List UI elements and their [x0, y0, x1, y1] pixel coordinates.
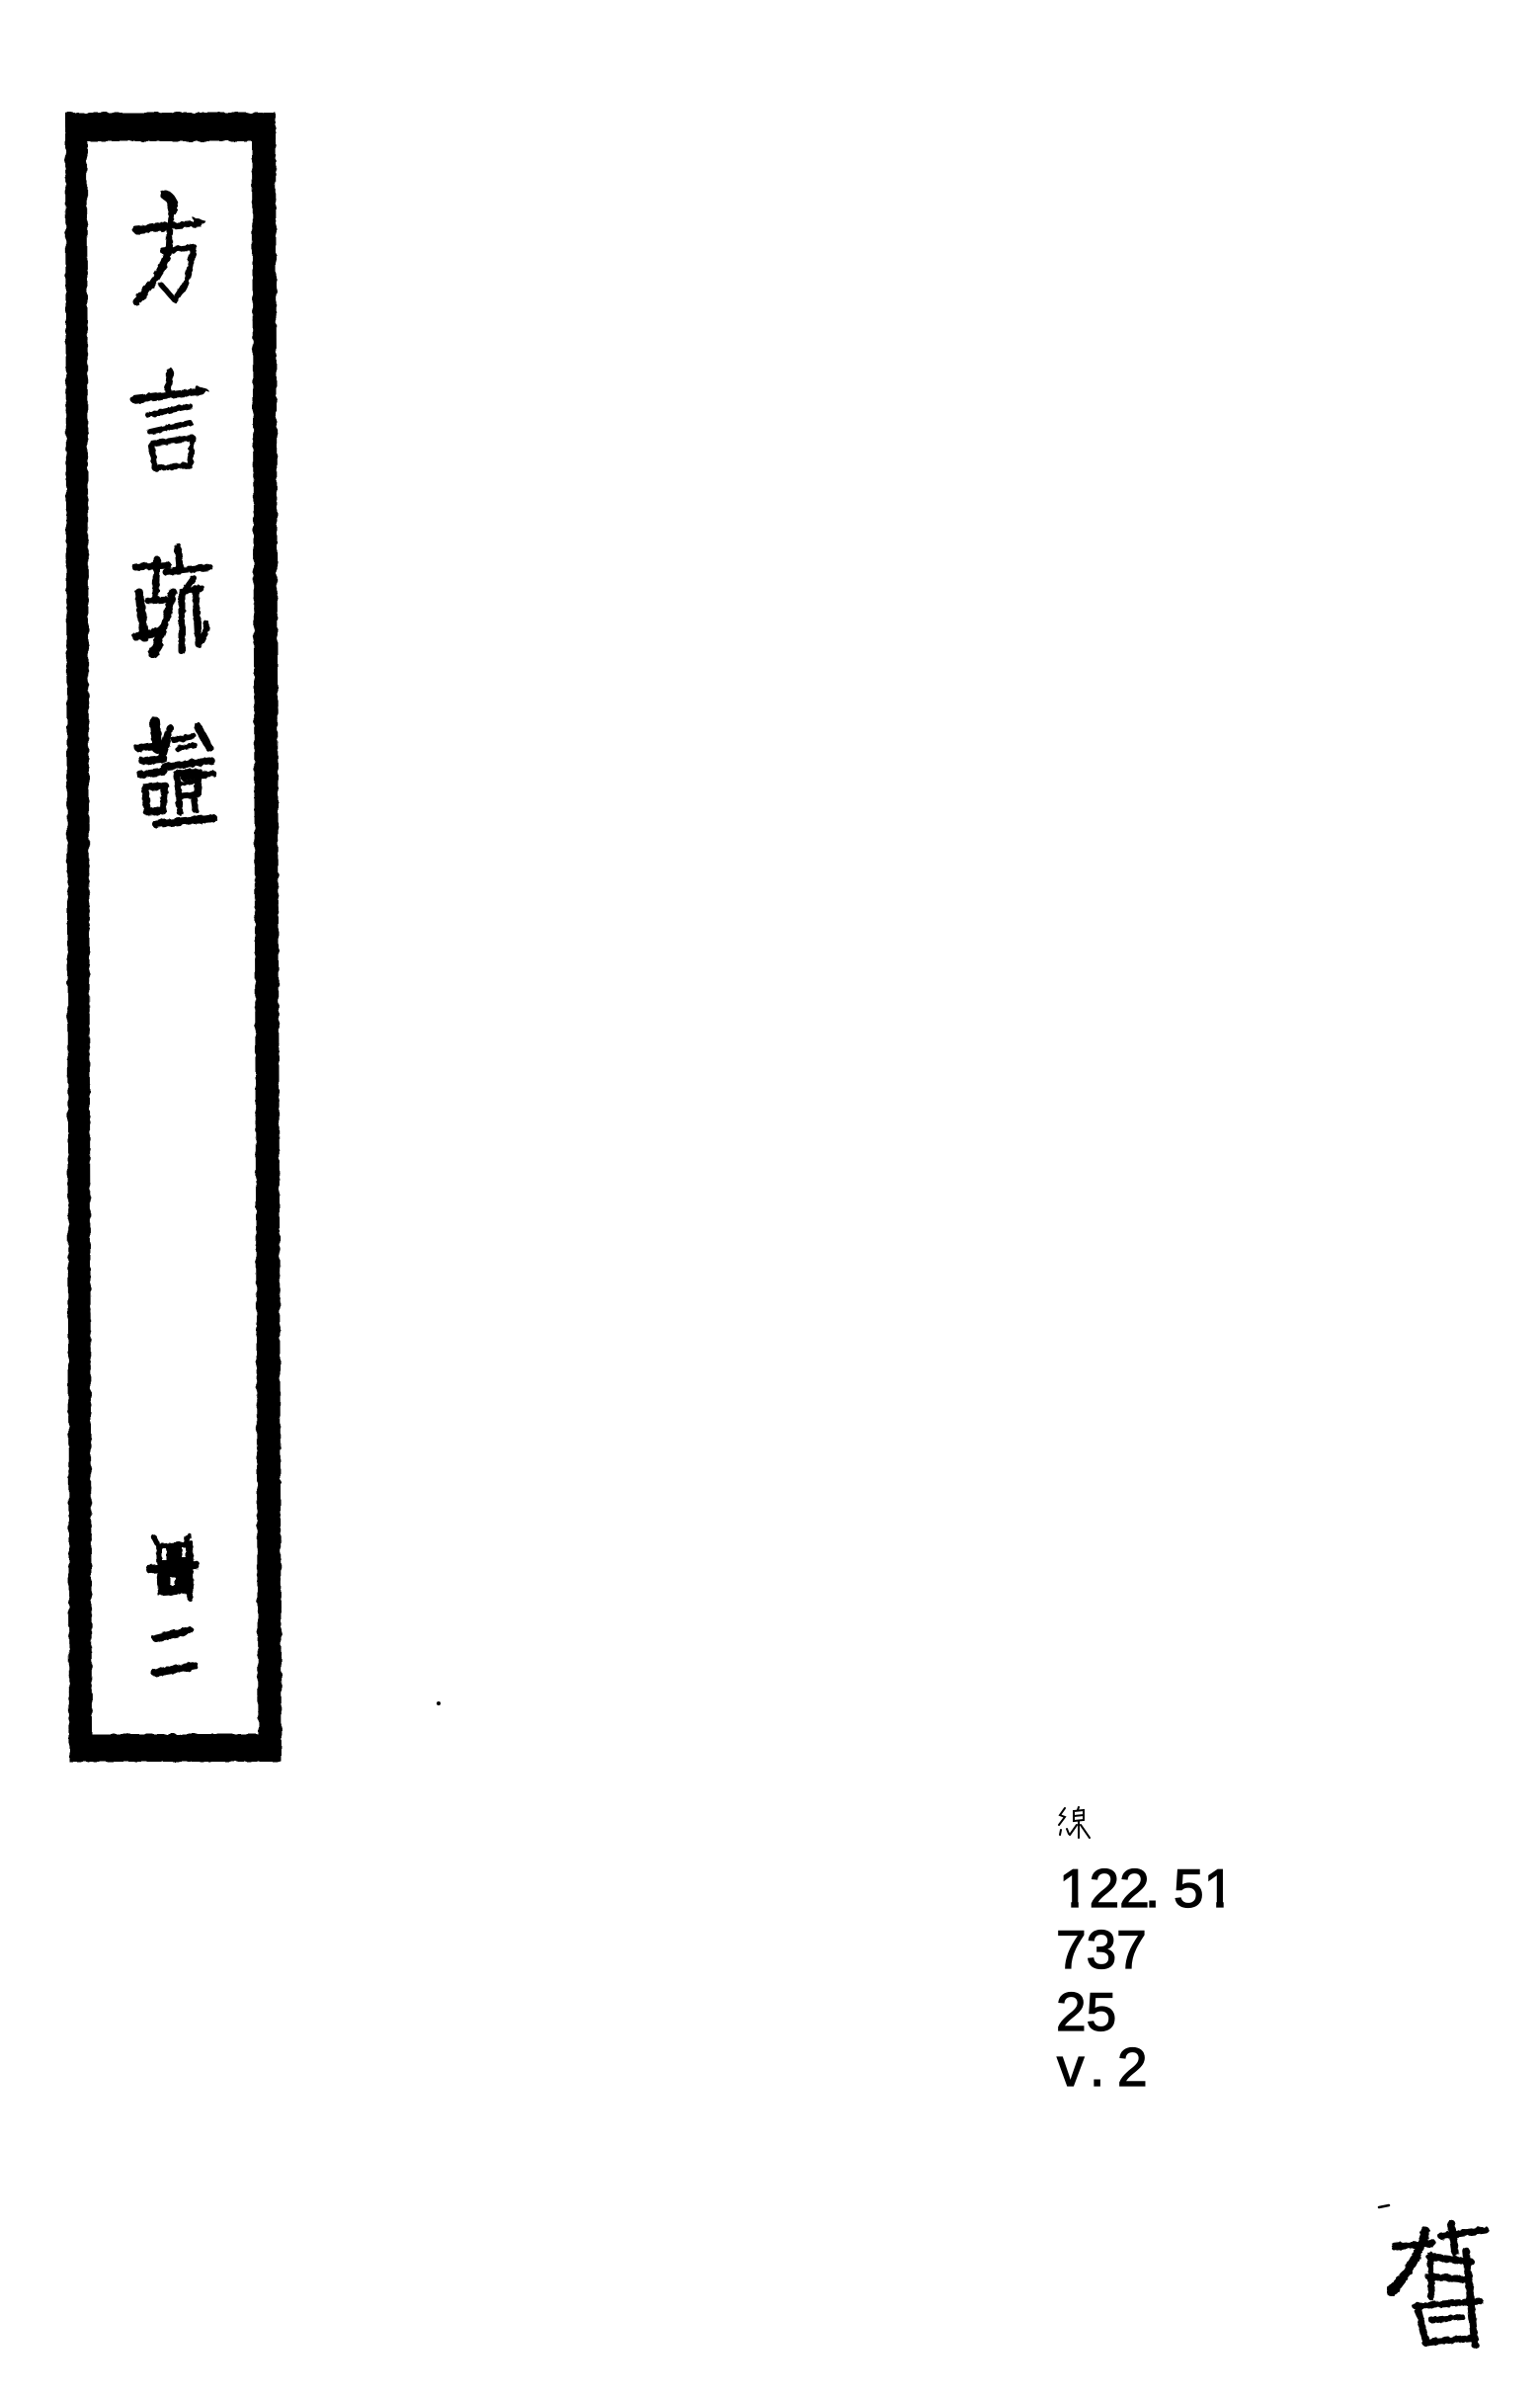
- svg-text:v: v: [1057, 2036, 1085, 2098]
- svg-text:.: .: [1145, 1858, 1160, 1919]
- svg-text:737: 737: [1056, 1919, 1147, 1980]
- svg-text:25: 25: [1056, 1981, 1116, 2042]
- svg-text:2: 2: [1117, 2036, 1148, 2098]
- svg-text:51: 51: [1174, 1858, 1234, 1919]
- svg-text:.: .: [1090, 2036, 1104, 2098]
- svg-text:122: 122: [1059, 1858, 1150, 1919]
